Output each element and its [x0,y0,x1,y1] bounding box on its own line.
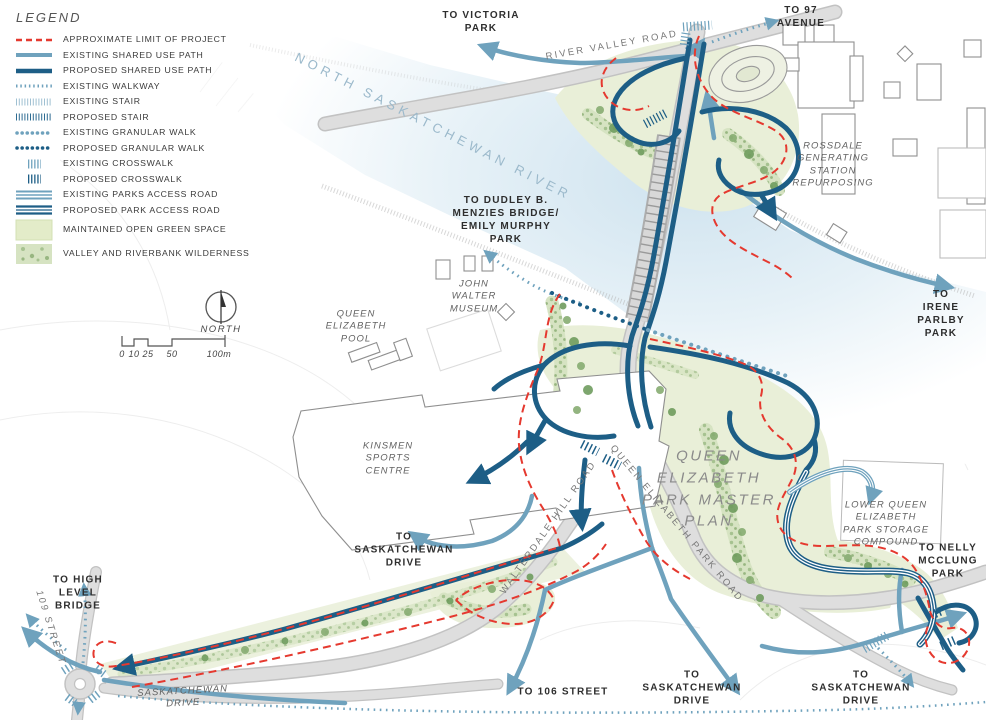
legend-item-existing-shared-use-path: EXISTING SHARED USE PATH [14,49,272,63]
red-dashed-line-icon [14,34,54,46]
label-to-97-avenue: TO 97 AVENUE [777,4,825,30]
textured-green-swatch-icon [14,243,54,265]
light-blue-triple-line-icon [14,189,54,201]
label-to-irene-parlby-park: TO IRENE PARLBY PARK [917,288,965,340]
light-blue-round-dots-icon [14,127,54,139]
scale-tick-25: 25 [142,349,153,359]
green-swatch-icon [14,219,54,241]
label-to-victoria-park: TO VICTORIA PARK [442,9,519,35]
legend-item-existing-crosswalk: EXISTING CROSSWALK [14,157,272,171]
dark-blue-triple-line-icon [14,204,54,216]
legend-item-existing-granular-walk: EXISTING GRANULAR WALK [14,126,272,140]
light-blue-dotted-line-icon [14,80,54,92]
label-to-high-level-bridge: TO HIGH LEVEL BRIDGE [53,574,103,613]
label-to-saskatchewan-drive-south: TO SASKATCHEWAN DRIVE [642,669,741,708]
label-lower-qep-storage: LOWER QUEEN ELIZABETH PARK STORAGE COMPO… [843,499,929,548]
light-blue-hatch-line-icon [14,96,54,108]
legend-item-proposed-granular-walk: PROPOSED GRANULAR WALK [14,142,272,156]
label-john-walter-museum: JOHN WALTER MUSEUM [450,278,498,315]
dark-blue-crosswalk-bars-icon [14,173,54,185]
legend-item-proposed-stair: PROPOSED STAIR [14,111,272,125]
scale-tick-50: 50 [166,349,177,359]
label-queen-elizabeth-pool: QUEEN ELIZABETH POOL [326,308,387,345]
scale-tick-100m: 100m [207,349,232,359]
legend-item-proposed-crosswalk: PROPOSED CROSSWALK [14,173,272,187]
label-saskatchewan-drive: SASKATCHEWAN DRIVE [137,683,229,712]
legend-item-existing-walkway: EXISTING WALKWAY [14,80,272,94]
label-to-nelly-mcclung-park: TO NELLY MCCLUNG PARK [918,542,978,581]
legend-item-valley-wilderness: VALLEY AND RIVERBANK WILDERNESS [14,243,272,265]
label-walterdale-hill-road: WALTERDALE HILL ROAD [498,459,600,597]
legend-item-existing-stair: EXISTING STAIR [14,95,272,109]
label-north: NORTH [200,324,241,336]
legend-item-maintained-green-space: MAINTAINED OPEN GREEN SPACE [14,219,272,241]
label-north-saskatchewan-river: NORTH SASKATCHEWAN RIVER [292,49,575,204]
legend-item-existing-parks-access-road: EXISTING PARKS ACCESS ROAD [14,188,272,202]
legend-item-limit-of-project: APPROXIMATE LIMIT OF PROJECT [14,33,272,47]
legend-item-proposed-park-access-road: PROPOSED PARK ACCESS ROAD [14,204,272,218]
light-blue-solid-line-icon [14,49,54,61]
label-rossdale-generating-station: ROSSDALE GENERATING STATION REPURPOSING [792,140,873,189]
legend-panel: LEGEND APPROXIMATE LIMIT OF PROJECT EXIS… [14,10,272,267]
legend-title: LEGEND [16,10,272,25]
label-to-dudley-menzies: TO DUDLEY B. MENZIES BRIDGE/ EMILY MURPH… [453,194,560,246]
label-qep-master-plan: QUEEN ELIZABETH PARK MASTER PLAN [642,446,776,533]
dark-blue-hatch-line-icon [14,111,54,123]
label-to-saskatchewan-drive-east: TO SASKATCHEWAN DRIVE [811,669,910,708]
label-to-106-street: TO 106 STREET [518,686,609,699]
label-river-valley-road: RIVER VALLEY ROAD [545,28,679,63]
light-blue-crosswalk-bars-icon [14,158,54,170]
dark-blue-round-dots-icon [14,142,54,154]
label-kinsmen-sports-centre: KINSMEN SPORTS CENTRE [363,440,413,477]
scale-tick-10: 10 [128,349,139,359]
legend-item-proposed-shared-use-path: PROPOSED SHARED USE PATH [14,64,272,78]
scale-tick-0: 0 [119,349,125,359]
dark-blue-solid-line-icon [14,65,54,77]
label-to-saskatchewan-drive-west: TO SASKATCHEWAN DRIVE [354,531,453,570]
park-plan-map: TO VICTORIA PARK TO 97 AVENUE RIVER VALL… [0,0,986,720]
